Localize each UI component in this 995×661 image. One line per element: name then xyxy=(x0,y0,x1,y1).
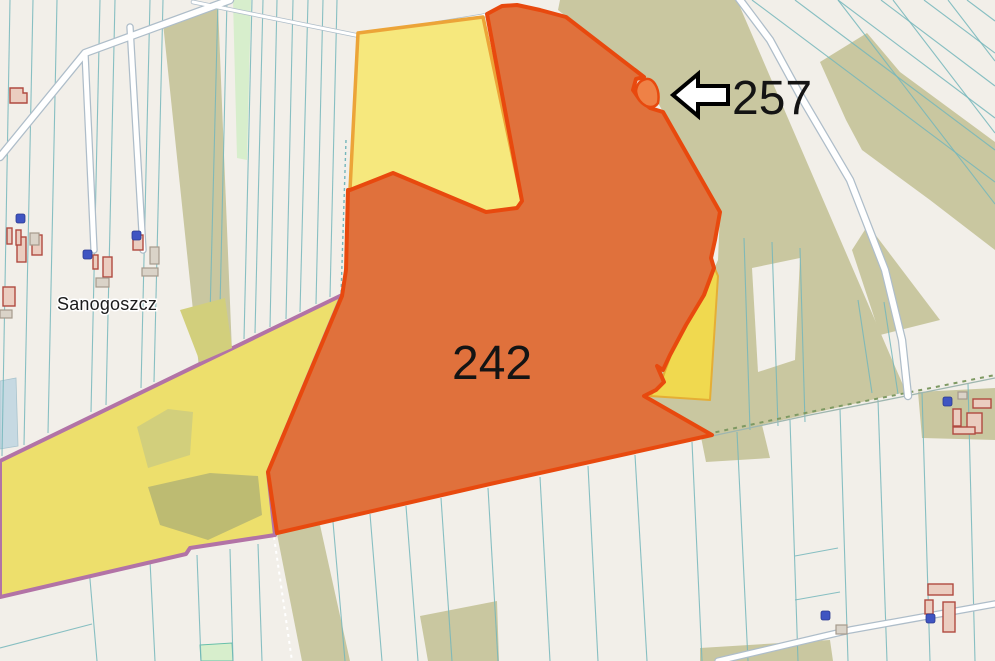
map-canvas[interactable]: Sanogoszcz 242 257 xyxy=(0,0,995,661)
poi-node-icon xyxy=(132,231,141,240)
building xyxy=(925,600,933,614)
building xyxy=(943,602,955,632)
poi-node-icon xyxy=(821,611,830,620)
place-label: Sanogoszcz xyxy=(57,294,157,314)
building xyxy=(953,427,975,434)
building xyxy=(103,257,112,277)
meadow-parcel xyxy=(200,643,233,661)
building xyxy=(30,233,39,245)
poi-node-icon xyxy=(943,397,952,406)
poi-node-icon xyxy=(83,250,92,259)
building xyxy=(142,268,158,276)
building xyxy=(0,310,12,318)
building xyxy=(93,255,98,269)
poi-node-icon xyxy=(926,614,935,623)
building xyxy=(150,247,159,264)
building xyxy=(836,625,847,634)
building xyxy=(7,228,12,244)
building xyxy=(953,409,961,426)
building xyxy=(973,399,991,408)
building xyxy=(3,287,15,306)
parcel-257-label: 257 xyxy=(732,72,812,125)
building xyxy=(928,584,953,595)
building xyxy=(96,278,109,287)
parcel-242-label: 242 xyxy=(452,337,532,390)
poi-node-icon xyxy=(16,214,25,223)
building xyxy=(958,392,967,399)
building xyxy=(16,230,21,245)
